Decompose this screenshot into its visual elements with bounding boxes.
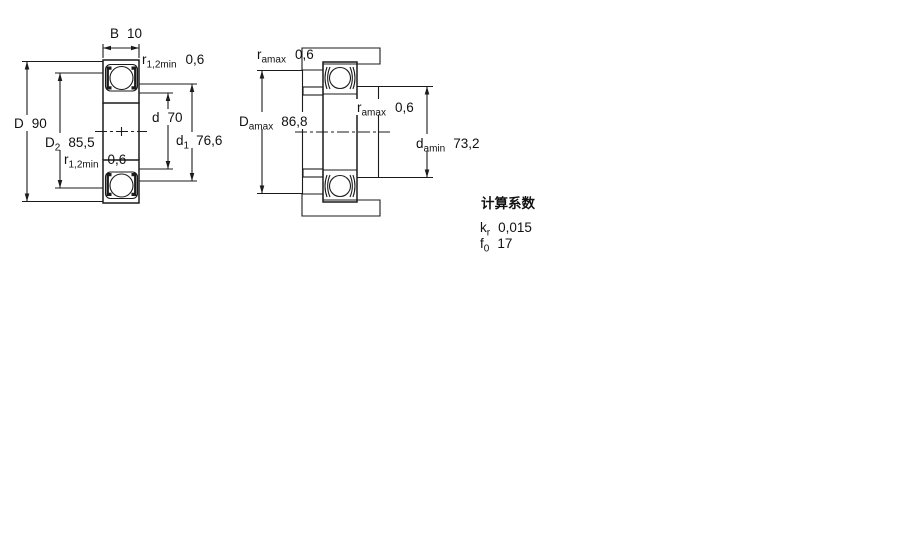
arrowhead (131, 46, 139, 51)
calculation-factors: 计算系数 kr0,015 f017 (480, 195, 535, 255)
right-view-mounting-section (295, 48, 390, 216)
factor-f0: f017 (480, 236, 512, 255)
technical-diagram: B10 r1,2min0,6 D90 D285,5 r1,2min0,6 d70 (0, 0, 900, 560)
upper-left-seal-icon (325, 67, 327, 89)
arrowhead (425, 87, 430, 95)
arrowhead (25, 62, 30, 70)
arrowhead (103, 46, 111, 51)
arrowhead (425, 170, 430, 178)
dim-label-B: B10 (110, 26, 142, 41)
dim-label-d: d70 (152, 110, 183, 125)
arrowhead (260, 71, 265, 79)
dim-B: B10 (103, 26, 142, 58)
lower-right-seal-icon (132, 173, 137, 196)
arrowhead (190, 173, 195, 181)
dim-D2: D285,5 (42, 73, 103, 188)
arrowhead (58, 180, 63, 188)
shaft-shoulder-top (303, 87, 323, 95)
calculation-factors-title: 计算系数 (481, 195, 535, 211)
upper-ball-icon (330, 68, 351, 89)
arrowhead (58, 73, 63, 81)
dim-D: D90 (11, 62, 103, 202)
dim-label-d1: d176,6 (176, 133, 222, 152)
dim-label-r-bottom: r1,2min0,6 (64, 152, 126, 171)
dim-ra-mid: ramax0,6 (354, 99, 414, 119)
dim-label-r-top: r1,2min0,6 (142, 52, 204, 71)
bearing-dimension-drawing: B10 r1,2min0,6 D90 D285,5 r1,2min0,6 d70 (0, 0, 900, 560)
dim-label-ra-top: ramax0,6 (257, 47, 314, 66)
housing-section-bottom (302, 194, 380, 216)
arrowhead (166, 161, 171, 169)
arrowhead (260, 186, 265, 194)
lower-ball-icon (330, 176, 351, 197)
arrowhead (25, 194, 30, 202)
lower-ball-icon (110, 174, 133, 197)
dim-r-bottom: r1,2min0,6 (64, 152, 126, 171)
lower-right-seal-icon (353, 175, 355, 197)
lower-left-seal-icon (107, 173, 112, 196)
upper-right-seal-icon (132, 67, 137, 90)
dim-label-D2: D285,5 (45, 135, 95, 154)
shaft-shoulder-bottom (303, 169, 323, 177)
dim-ra-top: ramax0,6 (257, 47, 314, 66)
dim-r-top: r1,2min0,6 (142, 52, 204, 71)
upper-left-seal-icon (107, 67, 112, 90)
lower-left-seal-icon (325, 175, 327, 197)
arrowhead (190, 84, 195, 92)
upper-ball-icon (110, 67, 133, 90)
dim-d1: d176,6 (139, 84, 224, 181)
arrowhead (166, 93, 171, 101)
upper-right-seal-icon (353, 67, 355, 89)
